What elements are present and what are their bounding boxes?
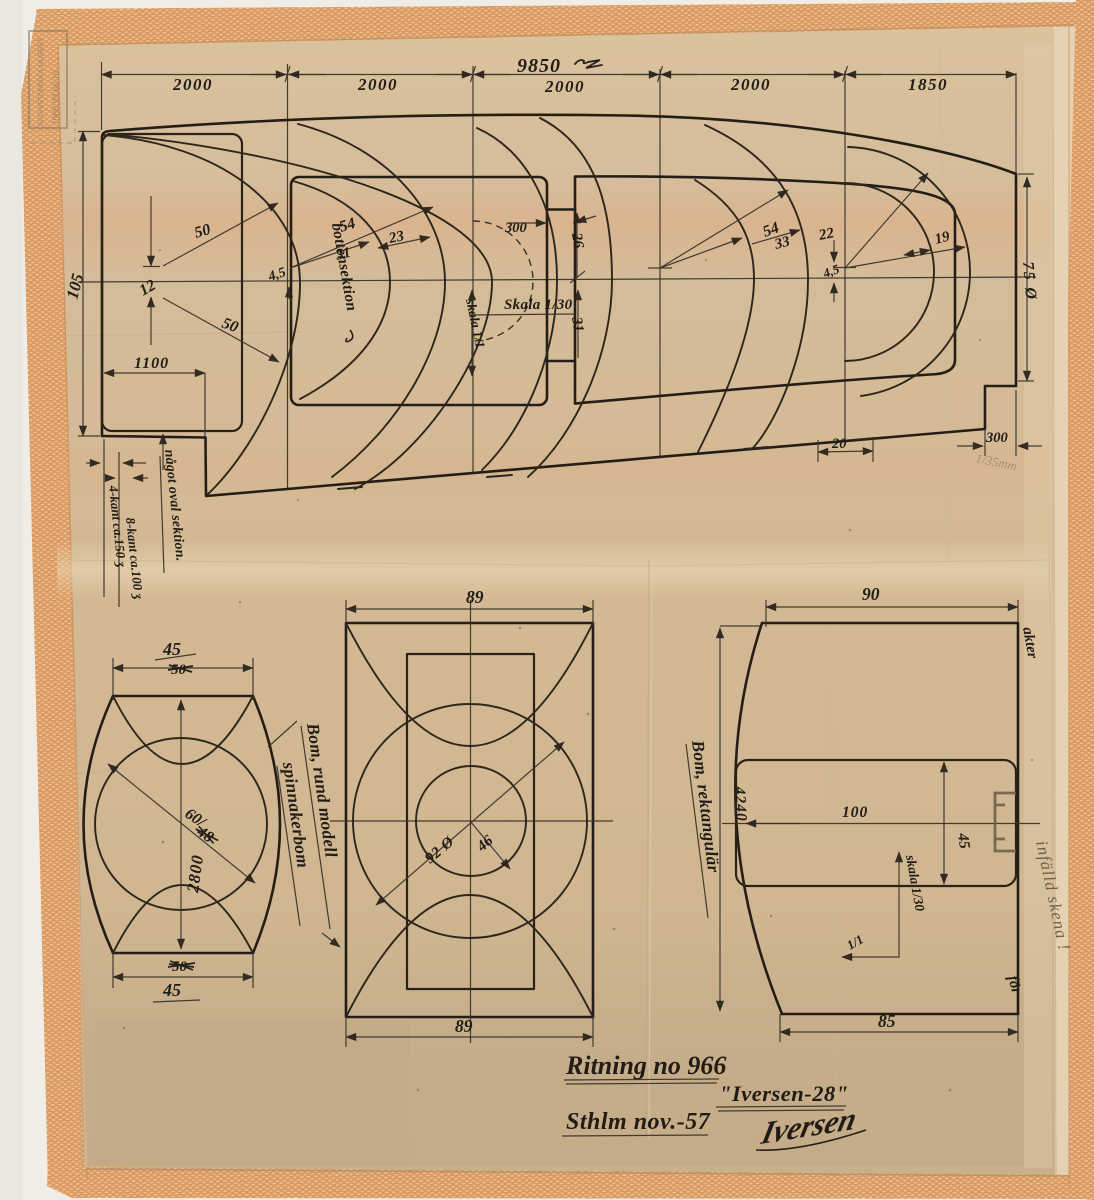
svg-text:31: 31 bbox=[568, 315, 587, 334]
svg-text:Sthlm nov.-57: Sthlm nov.-57 bbox=[566, 1109, 711, 1135]
svg-text:300: 300 bbox=[985, 430, 1008, 446]
svg-text:45: 45 bbox=[162, 980, 181, 1000]
svg-text:Ritning no 966: Ritning no 966 bbox=[565, 1051, 726, 1080]
svg-text:1100: 1100 bbox=[134, 355, 169, 372]
svg-text:300: 300 bbox=[504, 220, 527, 236]
svg-text:Skala 1/30: Skala 1/30 bbox=[504, 297, 573, 313]
svg-text:1988.99.66.16: 1988.99.66.16 bbox=[52, 70, 62, 125]
svg-text:85: 85 bbox=[878, 1011, 896, 1031]
svg-text:4240: 4240 bbox=[731, 785, 750, 822]
svg-text:1850: 1850 bbox=[908, 75, 948, 94]
svg-text:2000: 2000 bbox=[730, 75, 771, 94]
svg-text:45: 45 bbox=[162, 639, 181, 659]
svg-text:SJÖHISTORISKA MUSEET: SJÖHISTORISKA MUSEET bbox=[36, 36, 45, 126]
svg-text:90: 90 bbox=[862, 584, 880, 604]
svg-text:45: 45 bbox=[954, 831, 973, 850]
svg-text:26: 26 bbox=[568, 231, 587, 250]
svg-text:"Iversen-28": "Iversen-28" bbox=[719, 1081, 849, 1106]
svg-text:9850: 9850 bbox=[517, 55, 561, 77]
svg-text:2000: 2000 bbox=[357, 75, 398, 94]
svg-text:2000: 2000 bbox=[172, 75, 213, 94]
svg-text:100: 100 bbox=[842, 804, 868, 821]
svg-text:75 Ø: 75 Ø bbox=[1019, 261, 1039, 302]
svg-text:2000: 2000 bbox=[544, 77, 585, 96]
svg-text:89: 89 bbox=[455, 1016, 473, 1036]
svg-text:20: 20 bbox=[831, 436, 847, 452]
svg-text:89: 89 bbox=[466, 587, 484, 607]
